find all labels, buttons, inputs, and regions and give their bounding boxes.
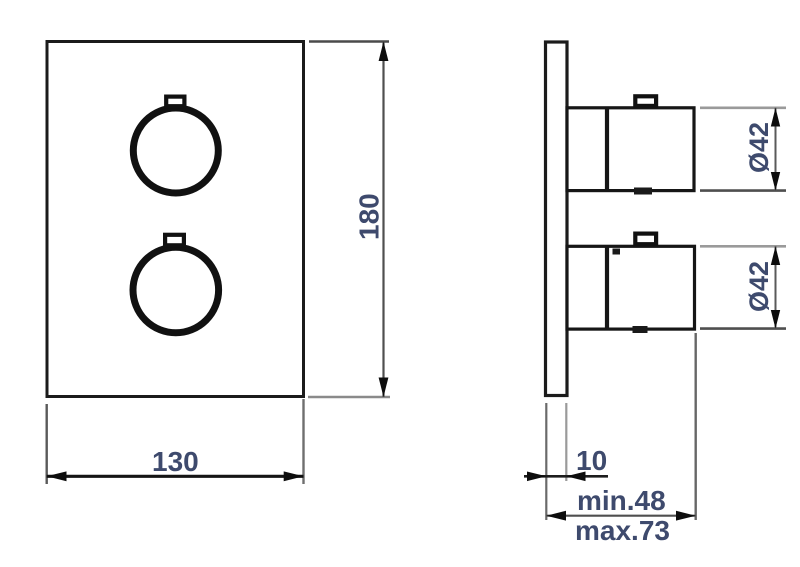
svg-text:min.48: min.48 <box>577 485 666 516</box>
svg-text:Ø42: Ø42 <box>744 261 774 312</box>
svg-text:Ø42: Ø42 <box>744 122 774 173</box>
svg-text:130: 130 <box>152 446 199 477</box>
svg-text:180: 180 <box>354 193 385 240</box>
svg-text:10: 10 <box>576 445 607 476</box>
svg-text:max.73: max.73 <box>575 515 670 546</box>
